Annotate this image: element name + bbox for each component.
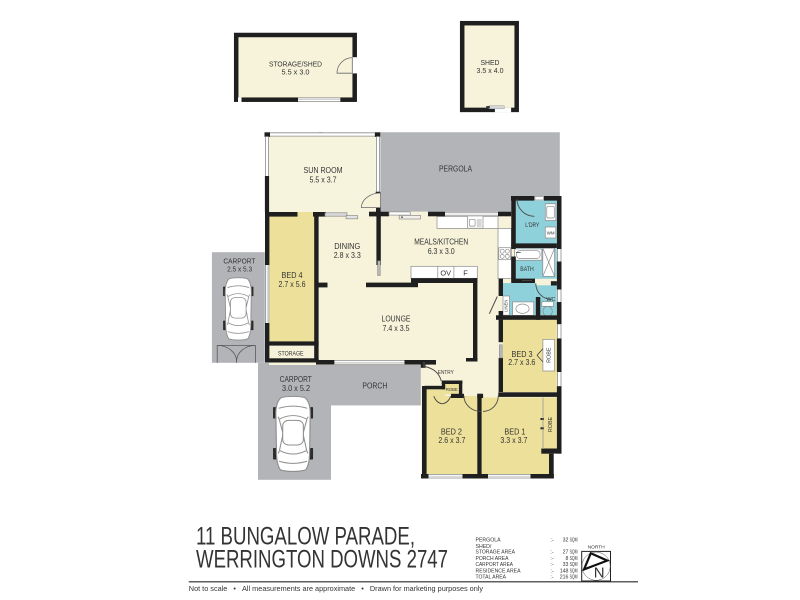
svg-text::-: :- [550, 562, 553, 568]
svg-text:L'DRY: L'DRY [525, 223, 539, 229]
svg-text:MEALS/KITCHEN: MEALS/KITCHEN [414, 237, 468, 246]
svg-text:3.0 x 5.2: 3.0 x 5.2 [282, 384, 311, 393]
svg-text:32: 32 [563, 537, 569, 543]
svg-text:PERGOLA: PERGOLA [439, 164, 473, 173]
svg-text:CARPORT AREA: CARPORT AREA [476, 562, 514, 568]
svg-text::-: :- [550, 550, 553, 556]
svg-text:STORAGE AREA: STORAGE AREA [476, 550, 516, 556]
svg-text::-: :- [550, 575, 553, 581]
svg-text:WC: WC [546, 297, 555, 303]
svg-text:SUN ROOM: SUN ROOM [304, 166, 343, 175]
svg-text::-: :- [550, 537, 553, 543]
svg-text:CARPORT: CARPORT [280, 375, 312, 384]
svg-text:BED 4: BED 4 [282, 271, 303, 280]
svg-text:ENTRY: ENTRY [438, 370, 454, 376]
svg-text:2.7 x 3.6: 2.7 x 3.6 [508, 358, 535, 367]
svg-text:OV: OV [440, 268, 451, 277]
svg-text:33: 33 [563, 562, 569, 568]
svg-text:2.5 x 5.3: 2.5 x 5.3 [227, 264, 252, 273]
svg-text:STORAGE: STORAGE [278, 350, 304, 357]
svg-text:7.4 x 3.5: 7.4 x 3.5 [383, 324, 410, 333]
svg-text:PERGOLA: PERGOLA [476, 537, 502, 543]
svg-text:5.5 x 3.7: 5.5 x 3.7 [310, 175, 337, 184]
svg-text:2.8 x 3.3: 2.8 x 3.3 [334, 251, 361, 260]
svg-text:3.3 x 3.7: 3.3 x 3.7 [500, 436, 527, 445]
svg-text:3.5 x 4.0: 3.5 x 4.0 [477, 66, 504, 75]
svg-text:ROBE: ROBE [547, 347, 553, 363]
svg-text:2.7 x 5.6: 2.7 x 5.6 [279, 280, 306, 289]
svg-text:WM: WM [547, 230, 555, 235]
svg-text:WERRINGTON DOWNS 2747: WERRINGTON DOWNS 2747 [196, 546, 448, 574]
svg-text:DINING: DINING [334, 242, 360, 251]
svg-text:ROBE: ROBE [446, 387, 458, 392]
svg-text:SQM: SQM [570, 537, 578, 543]
svg-text:ROBE: ROBE [548, 416, 554, 432]
svg-text:SQM: SQM [570, 562, 578, 568]
svg-text:SQM: SQM [570, 575, 578, 581]
svg-text:216: 216 [560, 575, 569, 581]
svg-text:6.3 x 3.0: 6.3 x 3.0 [428, 247, 455, 256]
svg-text:NORTH: NORTH [588, 545, 606, 551]
svg-text:LOUNGE: LOUNGE [382, 314, 411, 323]
svg-text:LINEN: LINEN [504, 300, 509, 312]
svg-text:Not to scale • All measure: Not to scale • All measurements are appr… [189, 584, 484, 593]
svg-text:PORCH: PORCH [362, 382, 387, 391]
svg-text:27: 27 [563, 550, 569, 556]
svg-text:5.5 x 3.0: 5.5 x 3.0 [282, 68, 310, 77]
svg-text:BATH: BATH [520, 267, 534, 273]
svg-text:SQM: SQM [570, 550, 578, 556]
svg-text:N: N [594, 564, 605, 581]
svg-text:F: F [463, 268, 468, 277]
svg-text:2.6 x 3.7: 2.6 x 3.7 [438, 436, 465, 445]
svg-text:TOTAL AREA: TOTAL AREA [476, 575, 507, 581]
